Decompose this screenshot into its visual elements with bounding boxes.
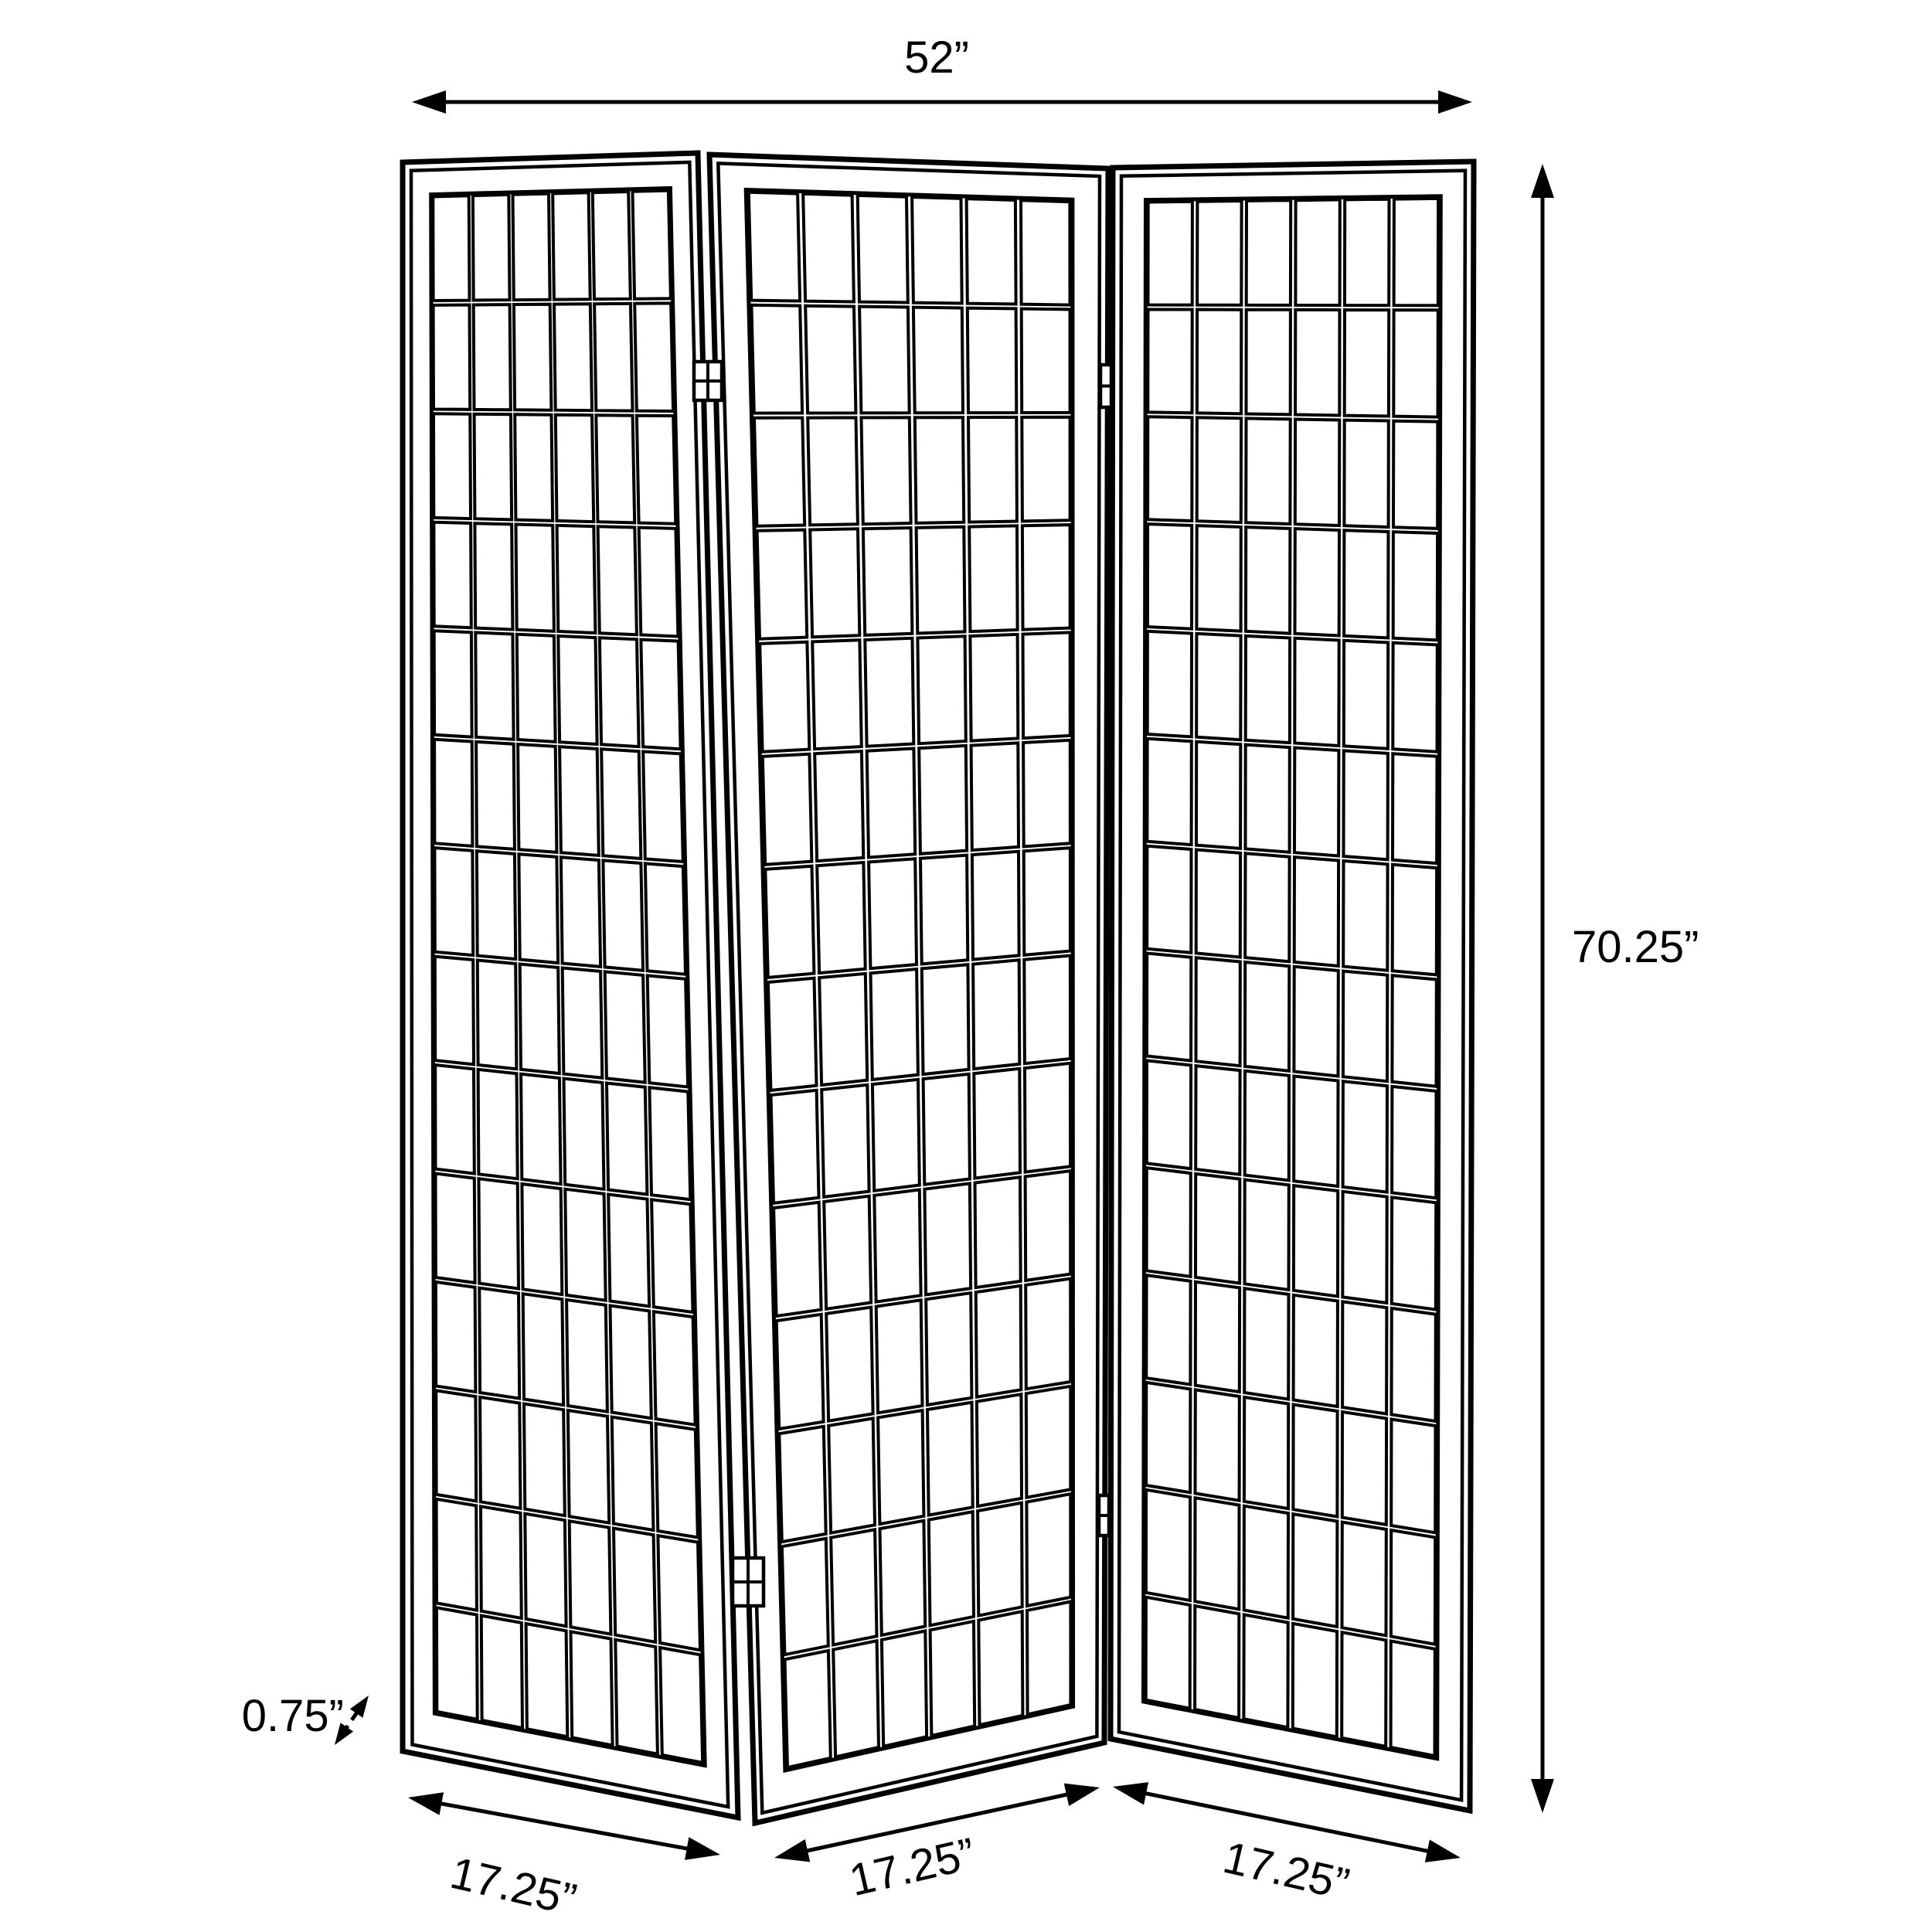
lattice-cell [1196, 1066, 1240, 1175]
lattice-cell [514, 304, 552, 410]
lattice-cell [1195, 1606, 1239, 1718]
lattice-cell [634, 303, 673, 411]
lattice-cell [1247, 310, 1291, 415]
lattice-cell [1196, 850, 1240, 957]
lattice-cell [777, 1315, 824, 1429]
lattice-cell [435, 957, 474, 1065]
lattice-cell [1343, 1081, 1387, 1192]
lattice-cell [774, 1202, 821, 1316]
lattice-cell [480, 1397, 520, 1509]
lattice-cell [568, 1410, 609, 1523]
lattice-cell [1196, 634, 1240, 740]
lattice-cell [771, 1090, 819, 1203]
lattice-cell [1342, 1522, 1386, 1636]
lattice-cell [749, 192, 800, 301]
lattice-cell [1245, 853, 1289, 961]
lattice-cell [563, 968, 603, 1078]
lattice-cell [930, 1621, 975, 1736]
lattice-cell [601, 749, 641, 859]
lattice-cell [607, 1083, 647, 1195]
lattice-cell [785, 1651, 831, 1767]
lattice-cell [557, 526, 596, 633]
lattice-cell [1196, 1389, 1240, 1500]
lattice-cell [812, 640, 862, 749]
lattice-cell [1197, 201, 1242, 305]
lattice-cell [1295, 529, 1340, 635]
lattice-cell [615, 1640, 658, 1754]
lattice-cell [596, 415, 634, 522]
lattice-cell [520, 964, 560, 1074]
lattice-cell [1295, 199, 1339, 305]
lattice-cell [605, 971, 645, 1082]
lattice-cell [751, 305, 802, 413]
lattice-cell [1392, 975, 1436, 1087]
lattice-cell [1393, 421, 1437, 529]
lattice-cell [1148, 524, 1192, 629]
lattice-cell [1294, 857, 1338, 966]
lattice-cell [639, 528, 679, 637]
lattice-cell [1024, 848, 1070, 955]
lattice-cell [1342, 1301, 1386, 1413]
lattice-cell [1392, 1197, 1436, 1309]
lattice-cell [1293, 1514, 1337, 1627]
lattice-cell [637, 416, 675, 524]
lattice-cell [649, 1087, 690, 1199]
lattice-cell [1392, 1308, 1436, 1421]
lattice-cell [915, 417, 964, 523]
lattice-cell [876, 1300, 923, 1413]
lattice-cell [603, 860, 643, 970]
lattice-cell [474, 523, 512, 629]
lattice-cell [558, 636, 597, 744]
lattice-cell [1293, 1624, 1337, 1737]
lattice-cell [754, 418, 804, 526]
lattice-cell [1024, 956, 1070, 1064]
lattice-cell [473, 195, 510, 301]
lattice-cell [515, 414, 553, 521]
lattice-cell [593, 192, 631, 299]
lattice-cell [871, 969, 918, 1080]
lattice-cell [831, 1529, 876, 1645]
lattice-cell [859, 307, 910, 413]
thickness-dimension-label: 0.75” [242, 1691, 344, 1741]
lattice-cell [1243, 1614, 1287, 1727]
lattice-cell [523, 1294, 563, 1405]
lattice-cell [633, 191, 671, 299]
lattice-cell [972, 852, 1019, 960]
lattice-cell [1021, 200, 1070, 304]
lattice-cell [612, 1417, 654, 1530]
lattice-cell [436, 1282, 476, 1392]
lattice-cell [1247, 200, 1291, 305]
lattice-cell [1391, 1530, 1435, 1645]
lattice-cell [862, 417, 911, 524]
lattice-cell [554, 304, 592, 410]
lattice-cell [522, 1184, 562, 1294]
lattice-cell [516, 525, 554, 631]
lattice-cell [1244, 1397, 1288, 1509]
lattice-cell [926, 1293, 971, 1405]
lattice-cell [917, 527, 965, 634]
lattice-cell [1148, 417, 1192, 521]
lattice-cell [1147, 1168, 1191, 1277]
lattice-cell [1196, 742, 1240, 849]
lattice-cell [1196, 526, 1240, 631]
lattice-cell [1293, 1405, 1337, 1517]
lattice-cell [1394, 199, 1439, 305]
lattice-cell [1246, 418, 1291, 524]
lattice-cell [1344, 641, 1388, 749]
lattice-cell [660, 1648, 702, 1763]
lattice-cell [970, 634, 1018, 741]
lattice-cell [1392, 1087, 1436, 1198]
hinge-bottom-left-gap [733, 1558, 764, 1606]
lattice-cell [975, 1177, 1021, 1287]
lattice-cell [1245, 1071, 1289, 1181]
lattice-cell [1148, 309, 1192, 413]
lattice-cell [600, 638, 639, 747]
lattice-cell [1146, 1383, 1190, 1492]
lattice-cell [1026, 1494, 1070, 1606]
lattice-cell [863, 528, 913, 635]
lattice-cell [821, 1085, 869, 1197]
lattice-cell [978, 1503, 1022, 1616]
lattice-cell [1393, 532, 1437, 640]
lattice-cell [819, 974, 867, 1085]
lattice-cell [433, 196, 469, 301]
lattice-cell [1023, 740, 1070, 847]
lattice-cell [978, 1611, 1022, 1725]
lattice-cell [1393, 865, 1437, 975]
lattice-cell [435, 1065, 474, 1174]
lattice-cell [1294, 638, 1338, 746]
lattice-cell [768, 978, 817, 1090]
lattice-cell [1246, 636, 1290, 743]
lattice-cell [1245, 962, 1289, 1071]
lattice-cell [815, 751, 863, 861]
hinge-bottom-right-gap [1099, 1495, 1109, 1536]
lattice-cell [556, 415, 594, 522]
lattice-cell [920, 855, 968, 964]
lattice-cell [1393, 643, 1437, 752]
lattice-cell [968, 308, 1017, 413]
lattice-cell [643, 752, 683, 862]
lattice-cell [1197, 417, 1241, 522]
lattice-cell [481, 1616, 522, 1729]
lattice-cell [1196, 1282, 1240, 1392]
lattice-cell [1294, 748, 1338, 856]
lattice-cell [478, 961, 517, 1070]
lattice-cell [872, 1080, 920, 1191]
lattice-cell [641, 640, 680, 750]
lattice-cell [971, 743, 1019, 850]
lattice-cell [1393, 753, 1437, 863]
lattice-cell [525, 1514, 566, 1627]
panel-2 [709, 155, 1108, 1823]
lattice-cell [757, 530, 808, 639]
dimension-diagram: 52” 70.25” 0.75” 17.25” 17.25” 17.25” [0, 0, 1932, 1932]
lattice-cell [434, 522, 471, 628]
lattice-cell [808, 417, 858, 525]
lattice-cell [1345, 310, 1389, 417]
lattice-cell [1246, 745, 1290, 852]
lattice-cell [782, 1539, 828, 1655]
lattice-cell [436, 1174, 475, 1283]
lattice-cell [1146, 1597, 1190, 1709]
lattice-cell [882, 1631, 927, 1747]
lattice-cell [1294, 1185, 1338, 1296]
lattice-cell [967, 199, 1016, 304]
lattice-cell [651, 1199, 692, 1312]
lattice-cell [1342, 1412, 1386, 1525]
lattice-cell [437, 1607, 478, 1719]
lattice-cell [1244, 1288, 1288, 1399]
lattice-cell [1147, 739, 1191, 845]
lattice-cell [923, 1074, 970, 1185]
lattice-cell [969, 526, 1017, 631]
lattice-cell [880, 1521, 926, 1635]
lattice-cell [1022, 417, 1070, 522]
lattice-cell [974, 1069, 1020, 1179]
lattice-cell [594, 304, 632, 411]
lattice-cell [598, 526, 637, 634]
lattice-cell [1244, 1506, 1288, 1618]
lattice-cell [1342, 1632, 1386, 1747]
lattice-cell [645, 863, 685, 974]
lattice-cell [1246, 527, 1290, 634]
lattice-cell [1344, 420, 1388, 527]
lattice-cell [1147, 846, 1191, 953]
lattice-cell [519, 854, 558, 963]
panel-3 [1111, 162, 1474, 1811]
hinge-top-left-gap [694, 362, 722, 400]
lattice-cell [929, 1512, 974, 1625]
lattice-cell [1146, 1490, 1190, 1600]
lattice-cell [1343, 971, 1387, 1082]
lattice-cell [434, 848, 473, 955]
lattice-cell [826, 1308, 872, 1421]
lattice-cell [570, 1521, 611, 1634]
lattice-cell [1025, 1063, 1070, 1172]
lattice-cell [765, 866, 814, 978]
lattice-cell [867, 749, 916, 858]
lattice-cell [977, 1394, 1022, 1506]
lattice-cell [481, 1506, 522, 1618]
height-dimension-label: 70.25” [1572, 922, 1699, 972]
lattice-cell [865, 638, 913, 747]
lattice-cell [513, 194, 550, 301]
lattice-cell [648, 975, 688, 1087]
lattice-cell [869, 859, 917, 968]
lattice-cell [1391, 1420, 1435, 1533]
lattice-cell [478, 1070, 518, 1179]
lattice-cell [803, 194, 854, 302]
lattice-cell [1146, 1275, 1190, 1385]
lattice-cell [1245, 1180, 1289, 1291]
lattice-cell [560, 747, 599, 855]
lattice-cell [434, 413, 471, 519]
lattice-cell [553, 192, 590, 299]
lattice-cell [858, 196, 908, 303]
lattice-cell [1391, 1641, 1435, 1757]
lattice-cell [614, 1529, 655, 1642]
lattice-cell [476, 742, 515, 849]
lattice-cell [566, 1300, 607, 1412]
panel-1 [403, 153, 738, 1818]
lattice-cell [437, 1499, 477, 1611]
lattice-cell [571, 1631, 613, 1745]
lattice-cell [475, 633, 513, 740]
lattice-cell [474, 304, 511, 410]
lattice-cell [658, 1536, 700, 1650]
lattice-cell [561, 857, 600, 967]
lattice-cell [1294, 967, 1338, 1077]
lattice-cell [524, 1404, 565, 1516]
lattice-cell [1196, 1174, 1240, 1284]
lattice-cell [1295, 420, 1340, 526]
lattice-cell [817, 862, 866, 973]
screen-panels [403, 153, 1474, 1823]
hinge-top-right-gap [1100, 365, 1111, 407]
lattice-cell [611, 1306, 651, 1419]
lattice-cell [608, 1195, 649, 1307]
lattice-cell [564, 1079, 604, 1189]
lattice-cell [436, 1390, 476, 1501]
lattice-cell [1148, 202, 1192, 305]
lattice-cell [479, 1179, 519, 1288]
lattice-cell [917, 636, 965, 743]
lattice-cell [919, 746, 967, 854]
lattice-cell [434, 740, 472, 846]
lattice-cell [1026, 1171, 1071, 1281]
lattice-cell [1026, 1386, 1071, 1498]
lattice-cell [760, 642, 809, 752]
lattice-cell [521, 1074, 561, 1184]
lattice-cell [763, 754, 812, 865]
lattice-cell [1294, 1077, 1338, 1187]
lattice-cell [1295, 310, 1339, 416]
lattice-cell [824, 1196, 871, 1309]
lattice-cell [1027, 1602, 1071, 1715]
lattice-cell [1147, 954, 1191, 1061]
lattice-cell [1022, 309, 1070, 413]
lattice-cell [654, 1311, 696, 1425]
lattice-cell [913, 308, 963, 413]
lattice-cell [1342, 1192, 1386, 1303]
lattice-cell [924, 1183, 971, 1294]
lattice-cell [1294, 1295, 1338, 1406]
lattice-cell [1344, 530, 1388, 638]
lattice-cell [976, 1286, 1022, 1397]
lattice-cell [1344, 750, 1388, 859]
lattice-cell [968, 417, 1017, 522]
lattice-cell [656, 1423, 698, 1537]
lattice-cell [1196, 957, 1240, 1066]
lattice-cell [434, 631, 472, 736]
lattice-cell [474, 414, 512, 520]
width-dimension-label: 52” [904, 32, 969, 83]
lattice-cell [518, 744, 556, 852]
lattice-cell [1195, 1498, 1239, 1609]
lattice-cell [1026, 1279, 1070, 1389]
lattice-cell [973, 960, 1019, 1069]
lattice-cell [1023, 632, 1070, 738]
lattice-cell [810, 529, 859, 637]
lattice-cell [874, 1190, 920, 1302]
lattice-cell [1148, 631, 1192, 737]
lattice-cell [805, 306, 855, 413]
lattice-cell [477, 851, 515, 959]
lattice-cell [779, 1427, 825, 1542]
lattice-cell [479, 1288, 519, 1399]
lattice-cell [1343, 861, 1387, 971]
lattice-cell [517, 634, 556, 742]
lattice-cell [922, 964, 969, 1074]
lattice-cell [878, 1410, 923, 1524]
lattice-cell [1393, 310, 1438, 417]
lattice-cell [833, 1641, 879, 1757]
lattice-cell [1197, 310, 1241, 414]
lattice-cell [1147, 1060, 1191, 1168]
lattice-cell [434, 305, 471, 410]
lattice-cell [828, 1418, 875, 1532]
lattice-cell [927, 1403, 973, 1515]
lattice-cell [526, 1624, 568, 1736]
lattice-cell [1022, 525, 1070, 630]
lattice-cell [565, 1189, 605, 1301]
lattice-cell [1345, 199, 1389, 305]
lattice-cell [912, 197, 962, 304]
